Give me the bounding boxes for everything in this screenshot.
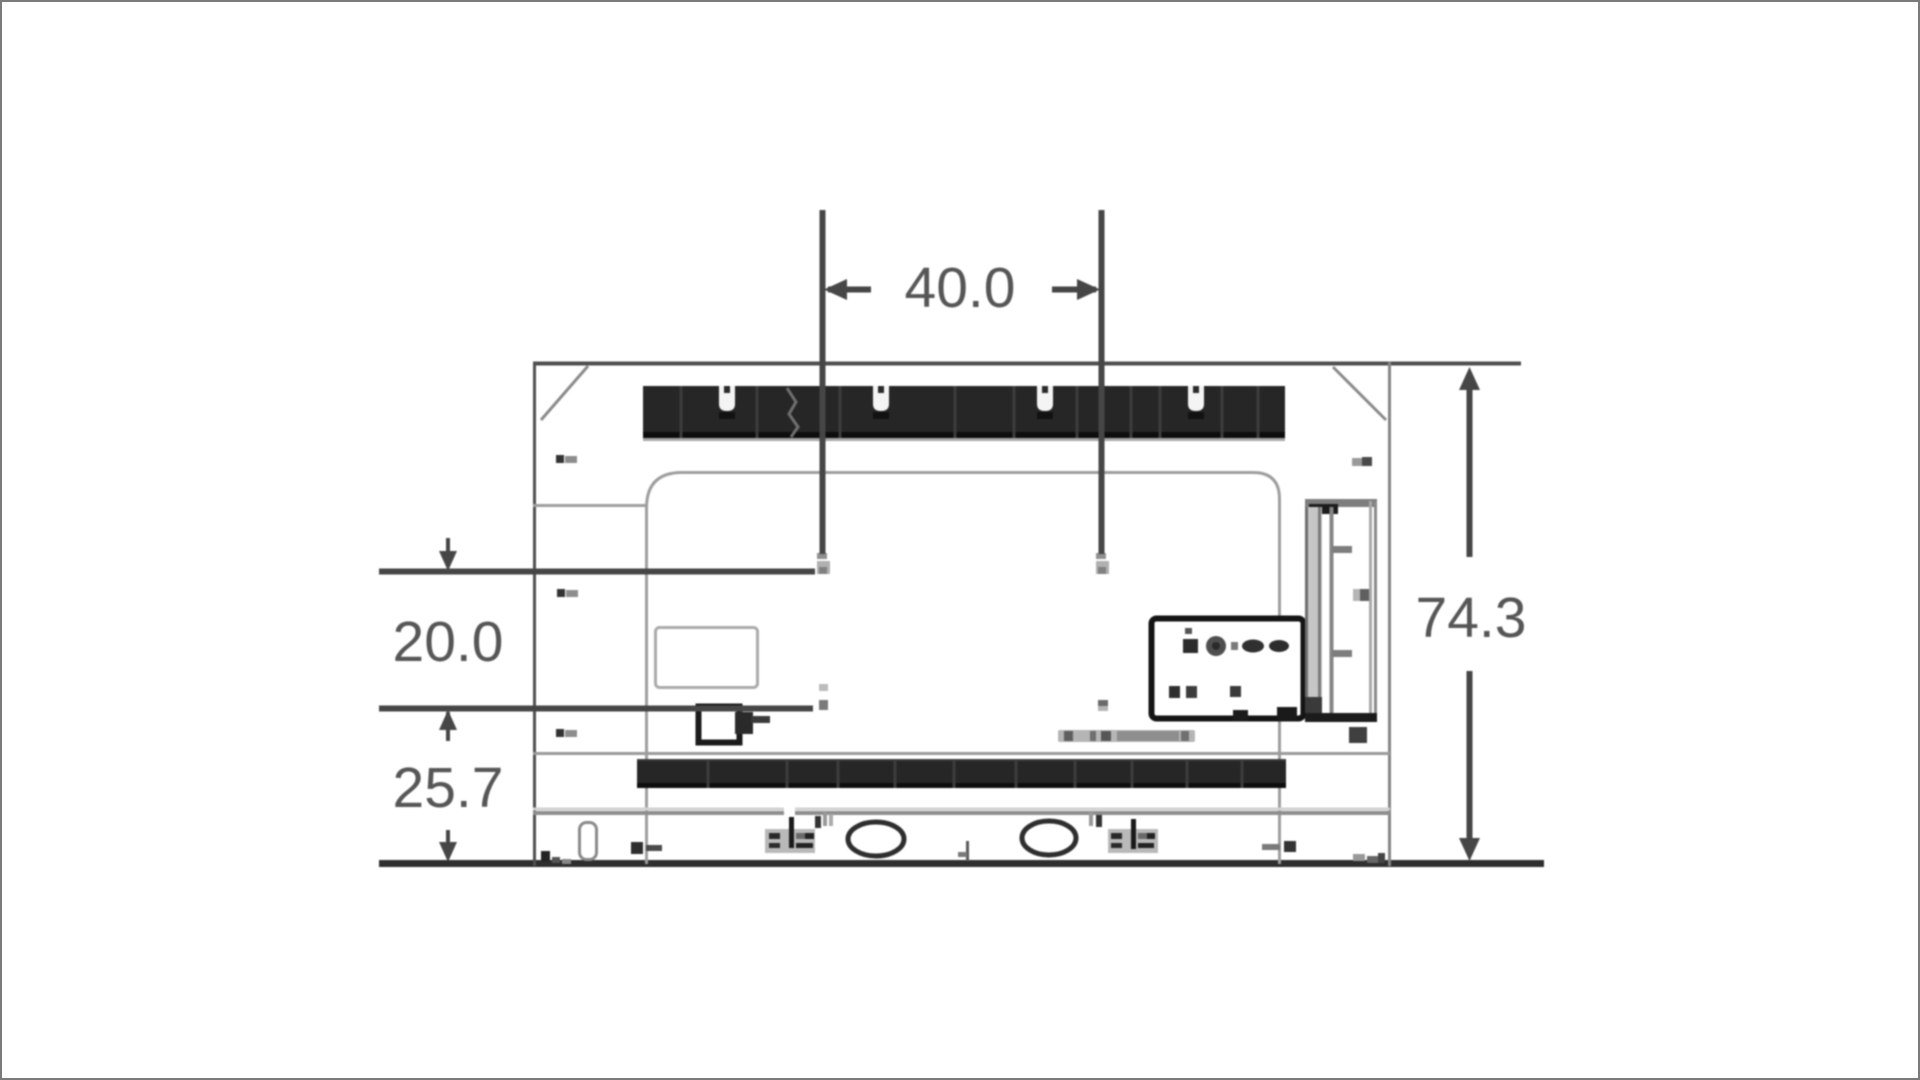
svg-text:25.7: 25.7 (393, 756, 504, 820)
svg-text:20.0: 20.0 (393, 610, 504, 674)
svg-text:40.0: 40.0 (905, 256, 1016, 320)
svg-text:74.3: 74.3 (1416, 586, 1527, 650)
